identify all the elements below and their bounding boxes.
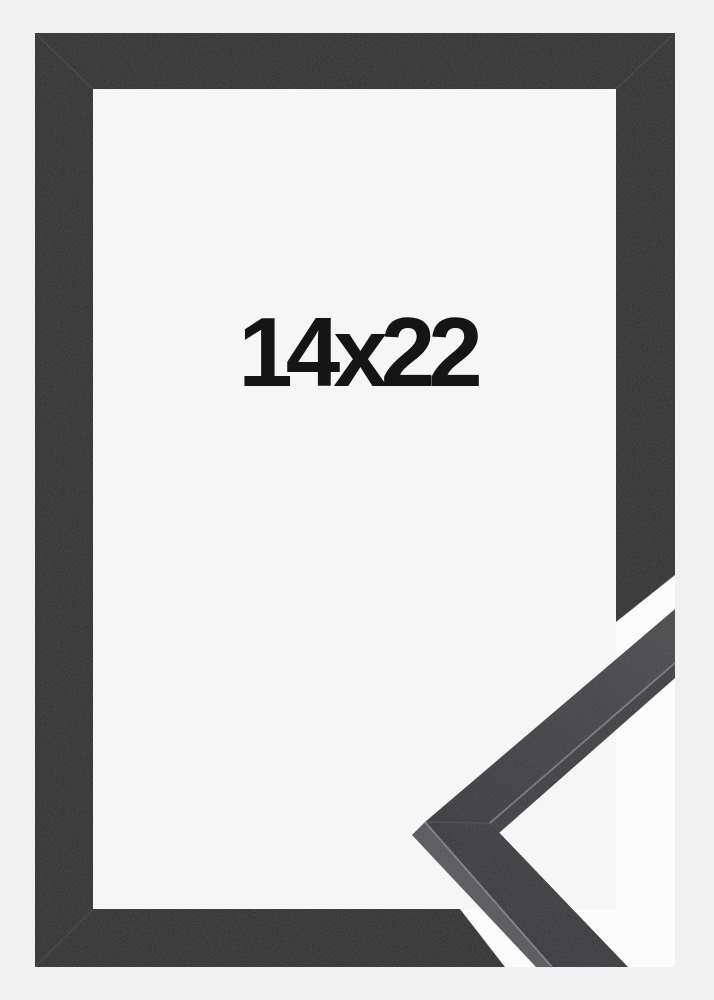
size-label: 14x22 (238, 297, 479, 407)
frame-top-bar (35, 33, 675, 89)
sample-miter-joint-line (425, 822, 490, 823)
frame-right-bar-cut (616, 89, 675, 622)
frame-bottom-bar-cut (35, 909, 505, 967)
frame-product-image: 14x22 (0, 0, 714, 1000)
frame-left-bar (35, 33, 93, 967)
product-photo-canvas: 14x22 (0, 0, 714, 1000)
